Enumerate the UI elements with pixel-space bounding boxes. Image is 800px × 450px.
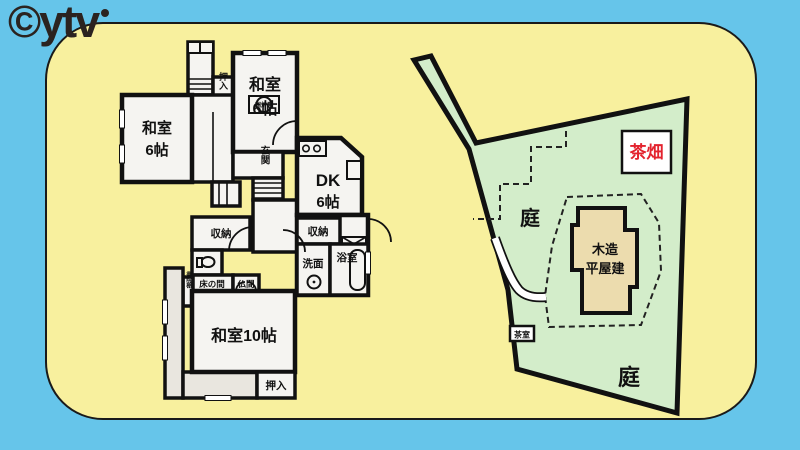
washitsu-top-label-1: 和室 [249, 75, 281, 94]
floor-plan: 囲炉裏 [120, 42, 392, 401]
entry-step-block [212, 182, 240, 206]
site-plan: 木造 平屋建 茶畑 茶室 庭 庭 [414, 56, 687, 413]
toilet-icon [197, 257, 215, 267]
garden-upper-label: 庭 [520, 206, 540, 230]
genkan-label: 玄関 [259, 145, 271, 166]
tea-field-badge: 茶畑 [622, 131, 671, 173]
bathroom-label: 浴室 [337, 251, 358, 264]
sink-icon [308, 276, 321, 289]
room-washitsu-6-left [122, 95, 192, 182]
entry-cabinet-right [200, 42, 213, 53]
dk-label-1: DK [316, 171, 341, 190]
ytv-logo-text: ©ytv [8, 0, 98, 47]
ytv-logo: ©ytv [8, 0, 98, 48]
tea-room-badge: 茶室 [510, 326, 534, 341]
building-label-2: 平屋建 [585, 261, 624, 276]
stove-icon [299, 141, 326, 156]
dk-label-2: 6帖 [316, 193, 339, 211]
hall [253, 200, 297, 252]
tea-field-label: 茶畑 [630, 142, 664, 162]
washroom-label: 洗面 [303, 257, 324, 270]
plan-canvas: 囲炉裏 [0, 0, 800, 450]
butsuma-label: 仏間 [236, 279, 254, 289]
genkan-steps [253, 178, 283, 200]
tokonoma-label: 床の間 [199, 279, 225, 289]
washitsu-top-label-2: 6帖 [253, 99, 278, 118]
closet-bottom-label: 押入 [266, 379, 287, 392]
engawa-left [165, 268, 183, 398]
entry-cabinet-left [188, 42, 200, 53]
storage-right-label: 収納 [308, 225, 329, 238]
storage-left-label: 収納 [211, 227, 232, 240]
door-arc-exterior [368, 219, 391, 242]
washitsu-left-label-2: 6帖 [145, 141, 168, 159]
washitsu-10-label: 和室10帖 [211, 326, 277, 345]
ytv-logo-dot [101, 9, 109, 17]
dk-shelf [347, 161, 361, 179]
shoin-label: 書院棚 [185, 271, 192, 290]
building-label-1: 木造 [591, 242, 619, 257]
washitsu-left-label-1: 和室 [142, 119, 172, 137]
garden-lower-label: 庭 [618, 365, 640, 390]
closet-top-label: 押入 [218, 71, 229, 91]
engawa-bottom [183, 372, 257, 398]
site-boundary [414, 56, 687, 413]
tea-room-label: 茶室 [513, 330, 530, 340]
